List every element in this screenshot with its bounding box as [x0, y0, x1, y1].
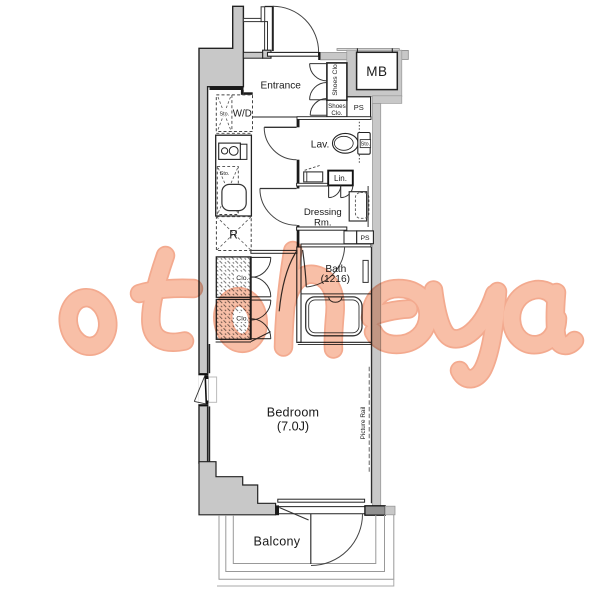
- svg-text:Sto.: Sto.: [220, 171, 230, 177]
- svg-text:Clo.: Clo.: [331, 110, 342, 117]
- svg-text:Bedroom: Bedroom: [267, 406, 320, 420]
- svg-text:Sto.: Sto.: [220, 111, 230, 117]
- svg-text:Lav.: Lav.: [311, 140, 330, 151]
- svg-text:PS: PS: [360, 235, 370, 242]
- svg-text:MB: MB: [366, 64, 387, 79]
- svg-text:Entrance: Entrance: [261, 81, 302, 92]
- svg-text:Picture Rail: Picture Rail: [360, 407, 367, 440]
- svg-text:Lin.: Lin.: [334, 174, 347, 183]
- svg-text:Dressing: Dressing: [304, 207, 342, 218]
- svg-text:PS: PS: [354, 103, 364, 112]
- svg-text:Clo.: Clo.: [236, 275, 248, 282]
- svg-text:(7.0J): (7.0J): [277, 420, 309, 434]
- svg-text:R: R: [229, 227, 238, 241]
- svg-text:Balcony: Balcony: [254, 535, 301, 549]
- svg-text:Clo.: Clo.: [236, 315, 248, 322]
- svg-text:Shoes Clo.: Shoes Clo.: [332, 62, 339, 95]
- svg-text:Sto.: Sto.: [361, 142, 371, 148]
- svg-text:W/D: W/D: [233, 108, 252, 119]
